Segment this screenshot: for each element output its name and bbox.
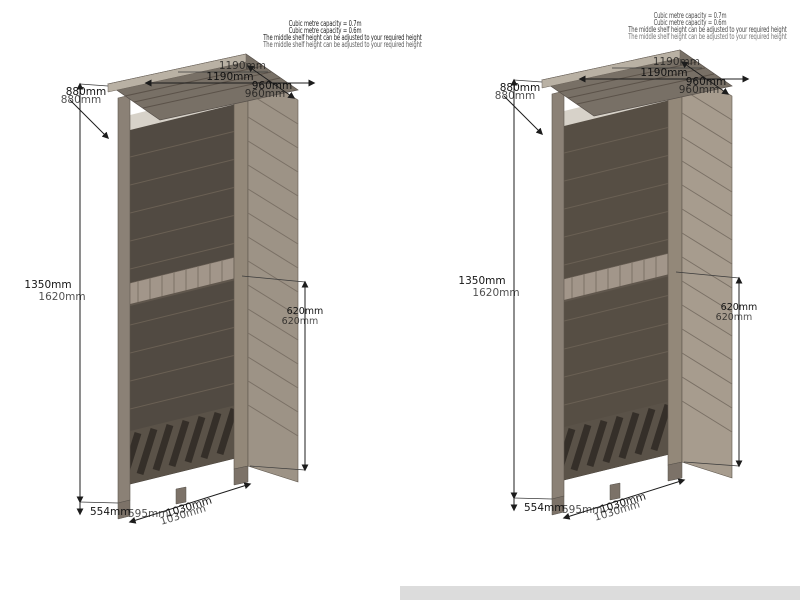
- log-store-drawing-right: 1190mm 1190mm 880mm 880mm 960mm 960mm 13…: [442, 38, 772, 558]
- dim-roof-back: 880mm 880mm: [61, 86, 108, 138]
- caption-block-right: Cubic metre capacity = 0.7m Cubic metre …: [595, 12, 785, 41]
- dim-roof-side-label: 960mm: [686, 76, 727, 88]
- dim-height-alt-label: 1620mm: [38, 291, 85, 303]
- front-right-post: [668, 65, 682, 465]
- log-store-drawing-left: 1190mm 1190mm 880mm 880mm 960mm 960mm 13…: [8, 42, 338, 562]
- log-store-unit: [542, 50, 732, 515]
- front-left-post: [118, 95, 130, 503]
- dim-roof-back-label: 880mm: [500, 82, 541, 94]
- front-right-leg: [668, 462, 682, 481]
- dim-top-width-label: 1190mm: [640, 67, 687, 79]
- log-store-view-right: Cubic metre capacity = 0.7m Cubic metre …: [442, 38, 772, 562]
- dim-height-label: 1350mm: [458, 275, 505, 287]
- side-panel: [682, 65, 732, 478]
- dim-base-depth-label: 554mm: [90, 506, 131, 518]
- log-store-view-left: Cubic metre capacity = 0.7m Cubic metre …: [8, 42, 338, 566]
- dim-shelf-label: 620mm: [721, 302, 758, 313]
- log-store-unit: [108, 54, 298, 519]
- dim-overall-height: 1350mm 1620mm: [458, 80, 552, 499]
- dim-shelf-label: 620mm: [287, 306, 324, 317]
- dim-height-label: 1350mm: [24, 279, 71, 291]
- dim-base-depth-label: 554mm: [524, 502, 565, 514]
- dim-roof-side-label: 960mm: [252, 80, 293, 92]
- front-left-post: [552, 91, 564, 499]
- dim-roof-back-label: 880mm: [66, 86, 107, 98]
- side-panel: [248, 69, 298, 482]
- shelf-note-ghost: The middle shelf height can be adjusted …: [263, 41, 387, 49]
- dim-base-width: 1030mm 1030mm: [130, 484, 250, 528]
- dim-shelf-ghost-label: 620mm: [282, 316, 319, 327]
- footer-bar: [400, 586, 800, 600]
- front-right-post: [234, 69, 248, 469]
- caption-block-left: Cubic metre capacity = 0.7m Cubic metre …: [230, 20, 420, 49]
- dim-height-alt-label: 1620mm: [472, 287, 519, 299]
- shelf-note-right-ghost: The middle shelf height can be adjusted …: [628, 33, 752, 41]
- dim-top-width-label: 1190mm: [206, 71, 253, 83]
- dim-overall-height: 1350mm 1620mm: [24, 84, 118, 503]
- dim-roof-back: 880mm 880mm: [495, 82, 542, 134]
- front-right-leg: [234, 466, 248, 485]
- dim-base-width: 1030mm 1030mm: [564, 480, 684, 524]
- dim-shelf-ghost-label: 620mm: [716, 312, 753, 323]
